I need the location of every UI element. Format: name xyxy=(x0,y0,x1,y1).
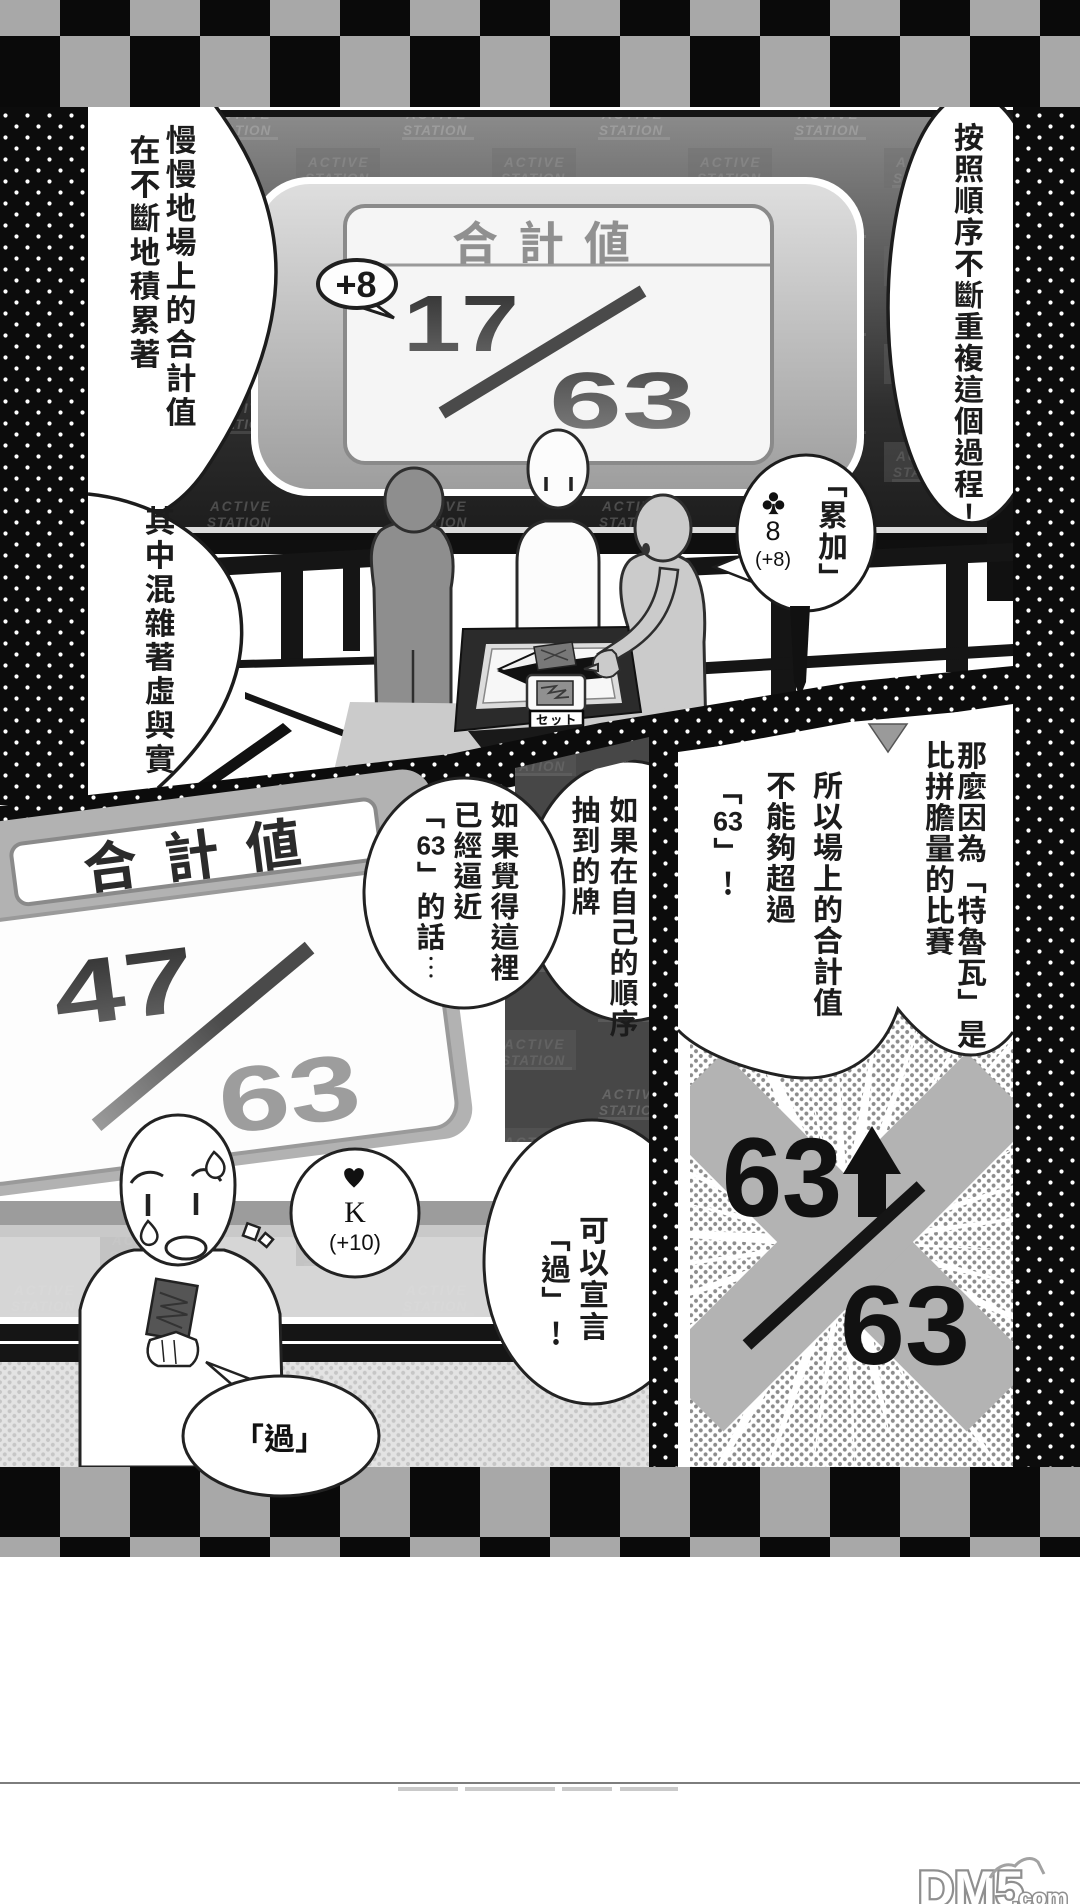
svg-text:47: 47 xyxy=(47,928,201,1047)
svg-text:63: 63 xyxy=(840,1263,970,1388)
svg-text:63: 63 xyxy=(722,1115,842,1240)
svg-text:.com: .com xyxy=(1012,1885,1068,1904)
svg-text:63: 63 xyxy=(549,356,695,445)
svg-text:63: 63 xyxy=(713,807,743,837)
svg-text:63: 63 xyxy=(212,1035,366,1154)
svg-text:+8: +8 xyxy=(335,264,376,305)
svg-text:17: 17 xyxy=(403,279,519,368)
svg-text:(+8): (+8) xyxy=(755,549,791,571)
svg-text:(+10): (+10) xyxy=(329,1230,381,1255)
svg-text:63: 63 xyxy=(417,830,446,860)
svg-text:DM5: DM5 xyxy=(918,1861,1024,1904)
svg-text:K: K xyxy=(344,1196,366,1229)
svg-text:8: 8 xyxy=(765,516,780,546)
